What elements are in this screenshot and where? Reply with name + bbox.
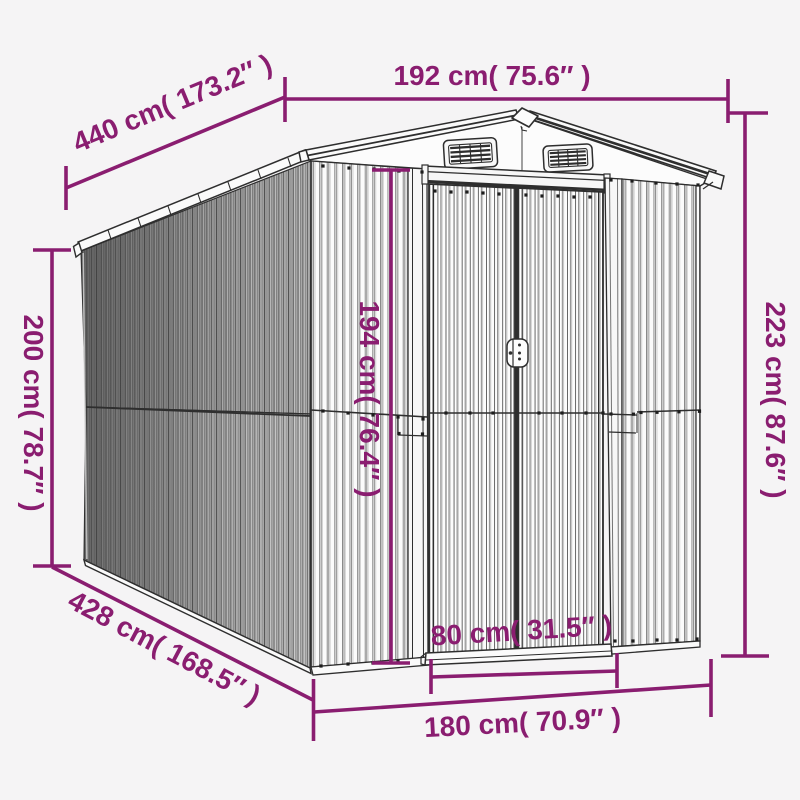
svg-text:200 cm( 78.7″ ): 200 cm( 78.7″ ): [18, 314, 49, 511]
svg-text:192 cm( 75.6″ ): 192 cm( 75.6″ ): [393, 60, 590, 91]
svg-text:194 cm( 76.4″ ): 194 cm( 76.4″ ): [354, 300, 385, 497]
svg-text:223 cm( 87.6″ ): 223 cm( 87.6″ ): [760, 301, 791, 498]
